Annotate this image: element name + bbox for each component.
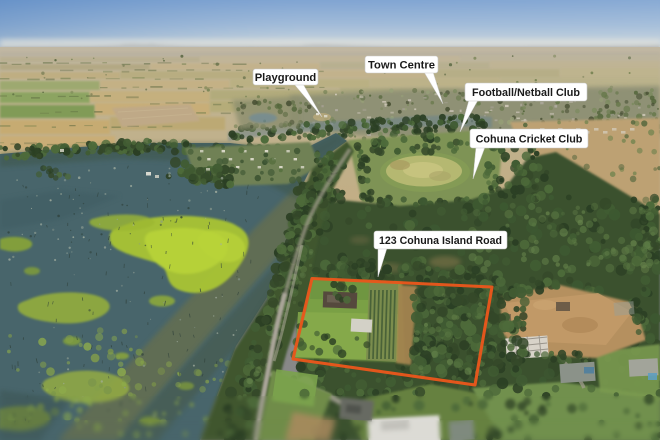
svg-text:Town Centre: Town Centre bbox=[368, 60, 435, 72]
svg-text:Football/Netball Club: Football/Netball Club bbox=[472, 87, 580, 99]
svg-text:Cohuna Cricket Club: Cohuna Cricket Club bbox=[476, 133, 583, 145]
svg-text:Playground: Playground bbox=[255, 72, 317, 84]
svg-text:123 Cohuna Island Road: 123 Cohuna Island Road bbox=[379, 235, 502, 247]
